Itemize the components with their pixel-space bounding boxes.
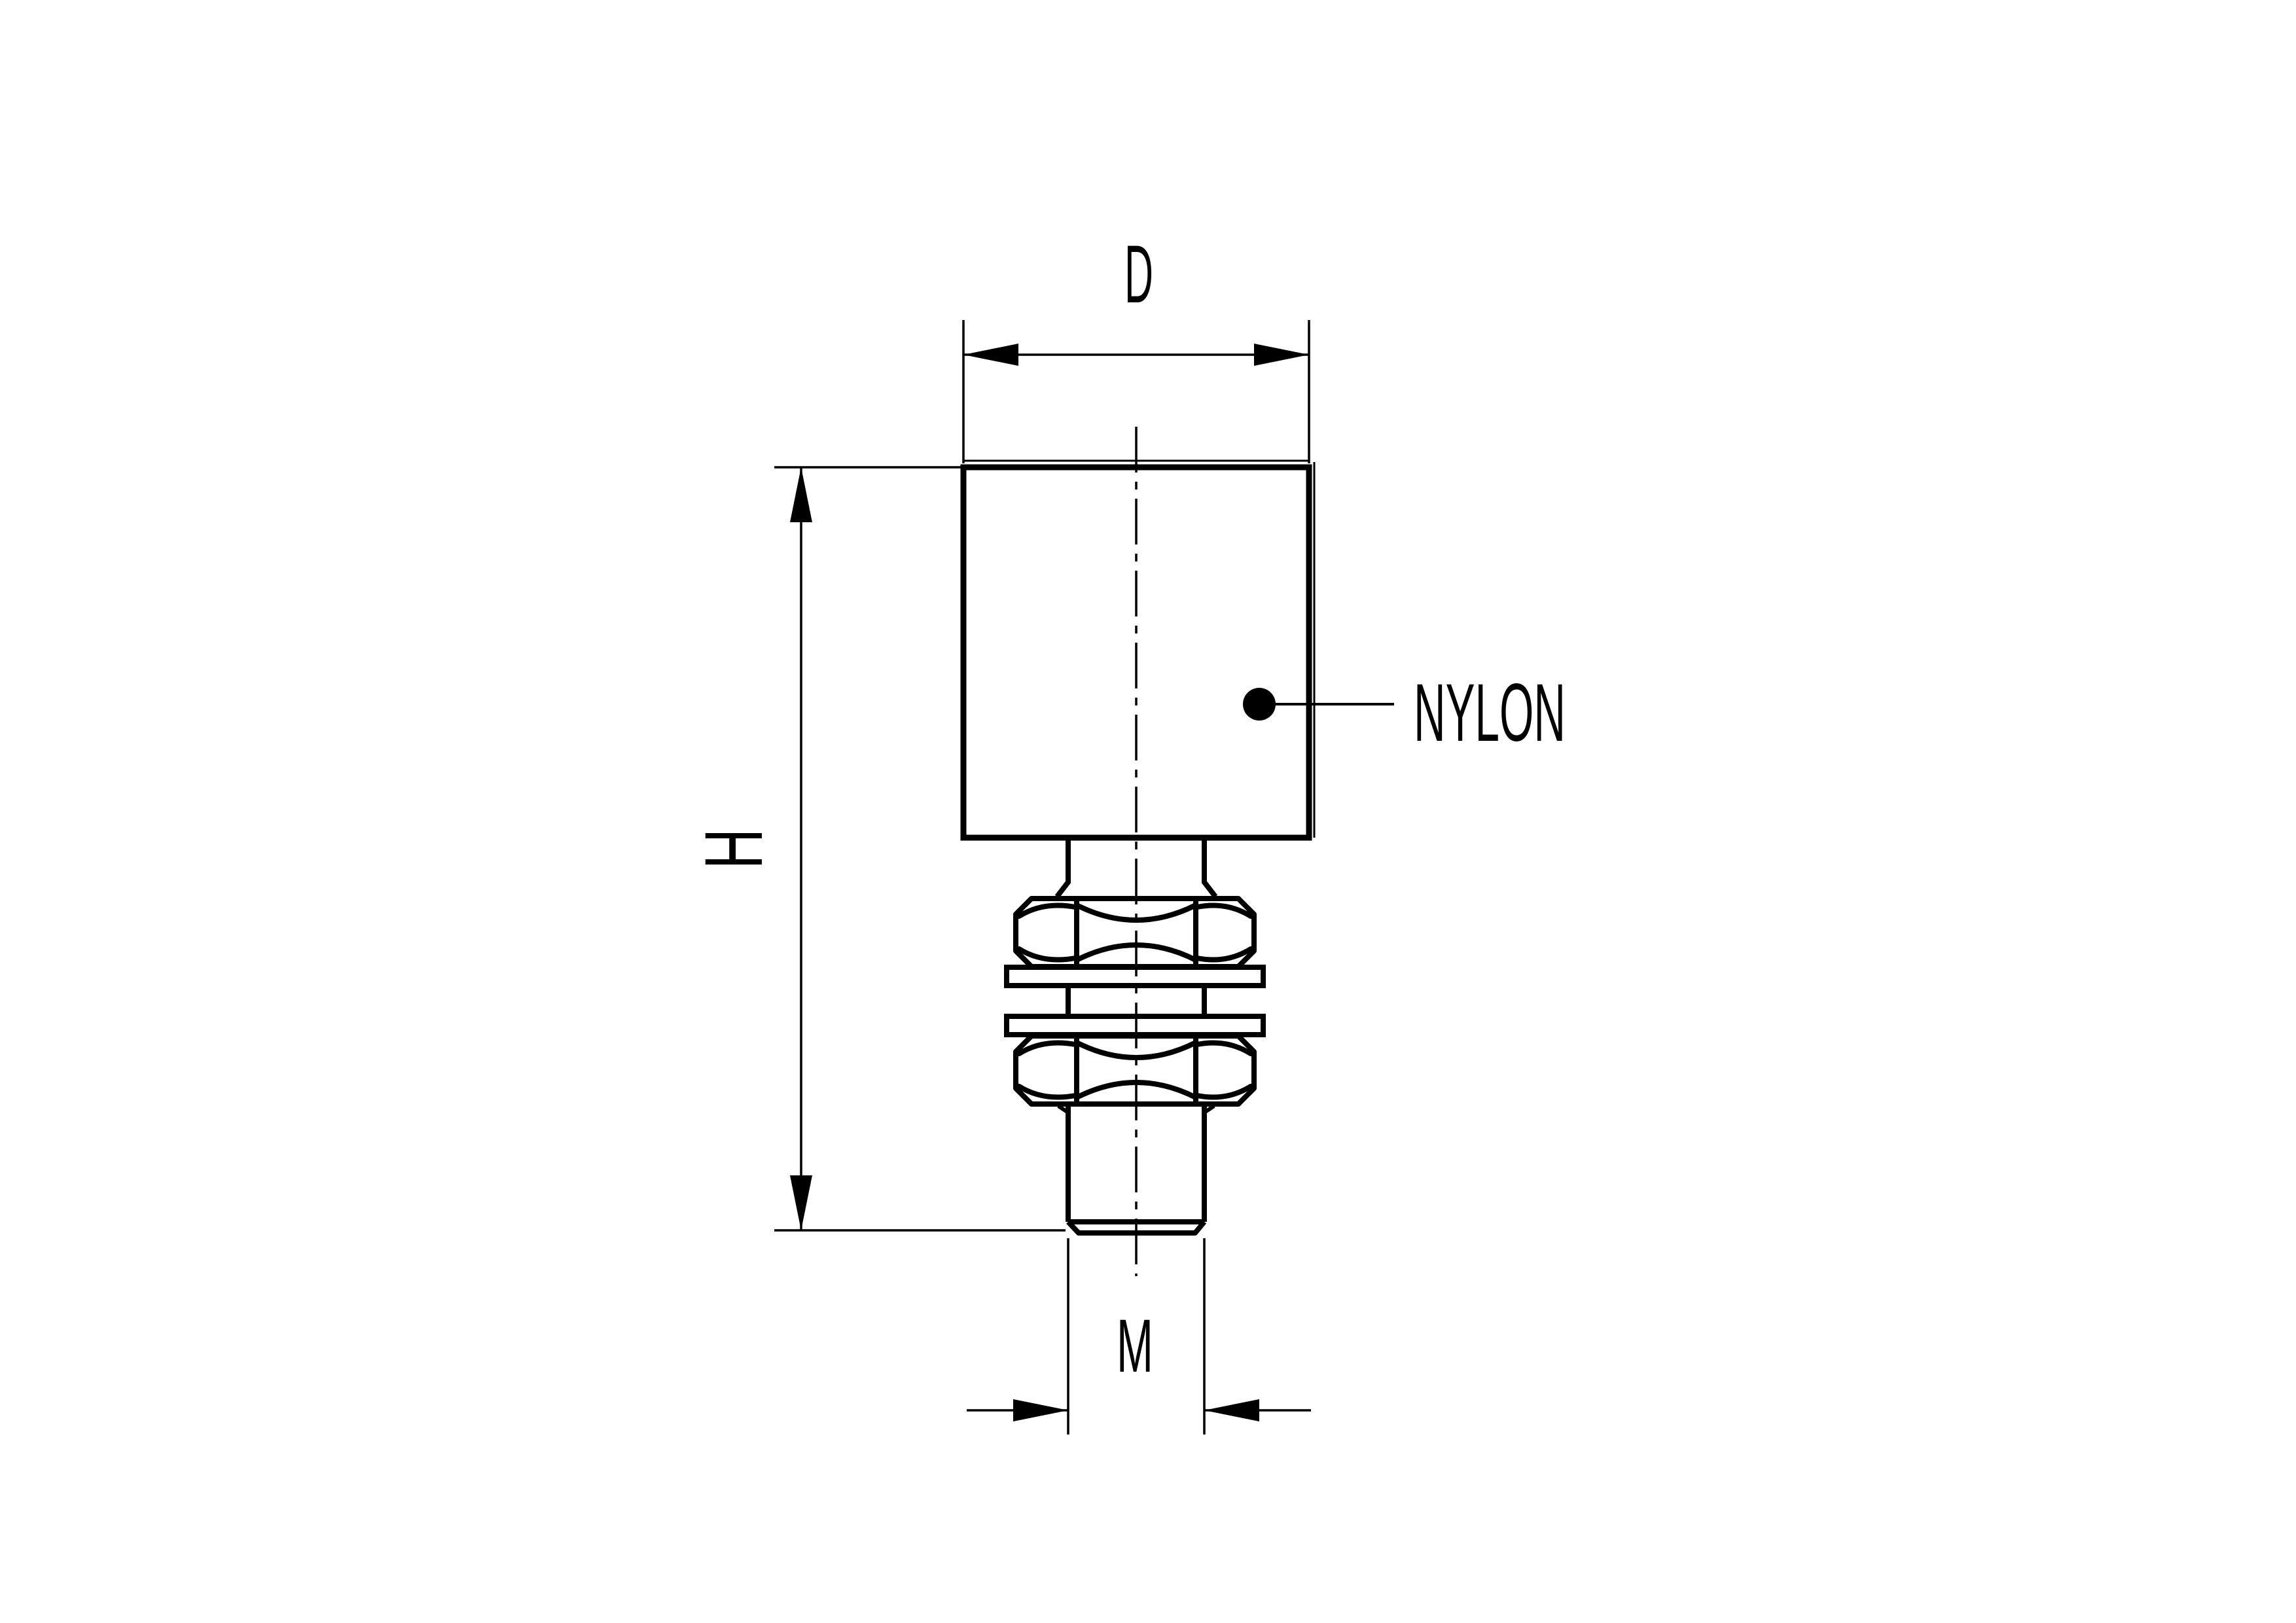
dimension-m-label: M <box>1117 1304 1153 1388</box>
dimension-m: M <box>967 1238 1311 1435</box>
arrowhead-right <box>1254 344 1309 366</box>
hex-nut-upper <box>1016 899 1254 967</box>
arrowhead-down <box>790 1175 812 1230</box>
arrowhead-up <box>790 467 812 522</box>
dimension-d-label: D <box>1124 229 1153 320</box>
leader-dot <box>1243 688 1276 721</box>
washer-lower <box>1007 1016 1263 1035</box>
arrowhead-right-in <box>1013 1399 1068 1421</box>
arrowhead-left <box>963 344 1018 366</box>
arrowhead-left-in <box>1204 1399 1259 1421</box>
technical-drawing: D H M NYLON <box>0 0 2296 1623</box>
drawing-sheet: D H M NYLON <box>0 0 2296 1623</box>
hex-nut-lower <box>1016 1036 1254 1104</box>
washer-upper <box>1007 967 1263 986</box>
dimension-h-label: H <box>689 829 780 869</box>
material-label: NYLON <box>1414 668 1566 758</box>
cylinder-body <box>963 461 1314 838</box>
